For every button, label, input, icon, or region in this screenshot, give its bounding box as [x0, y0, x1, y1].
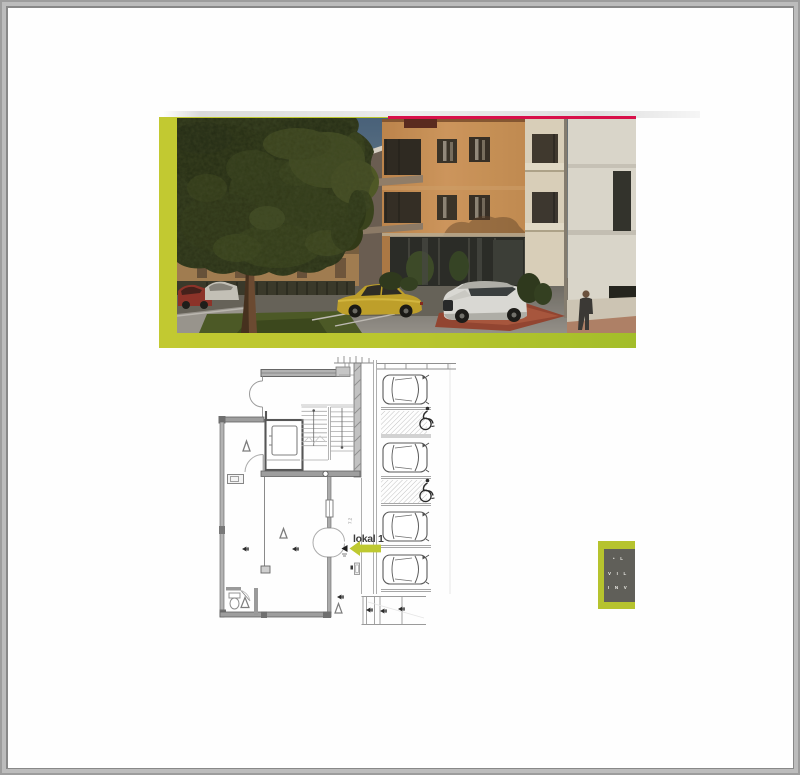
svg-text:7.2: 7.2	[348, 517, 353, 524]
